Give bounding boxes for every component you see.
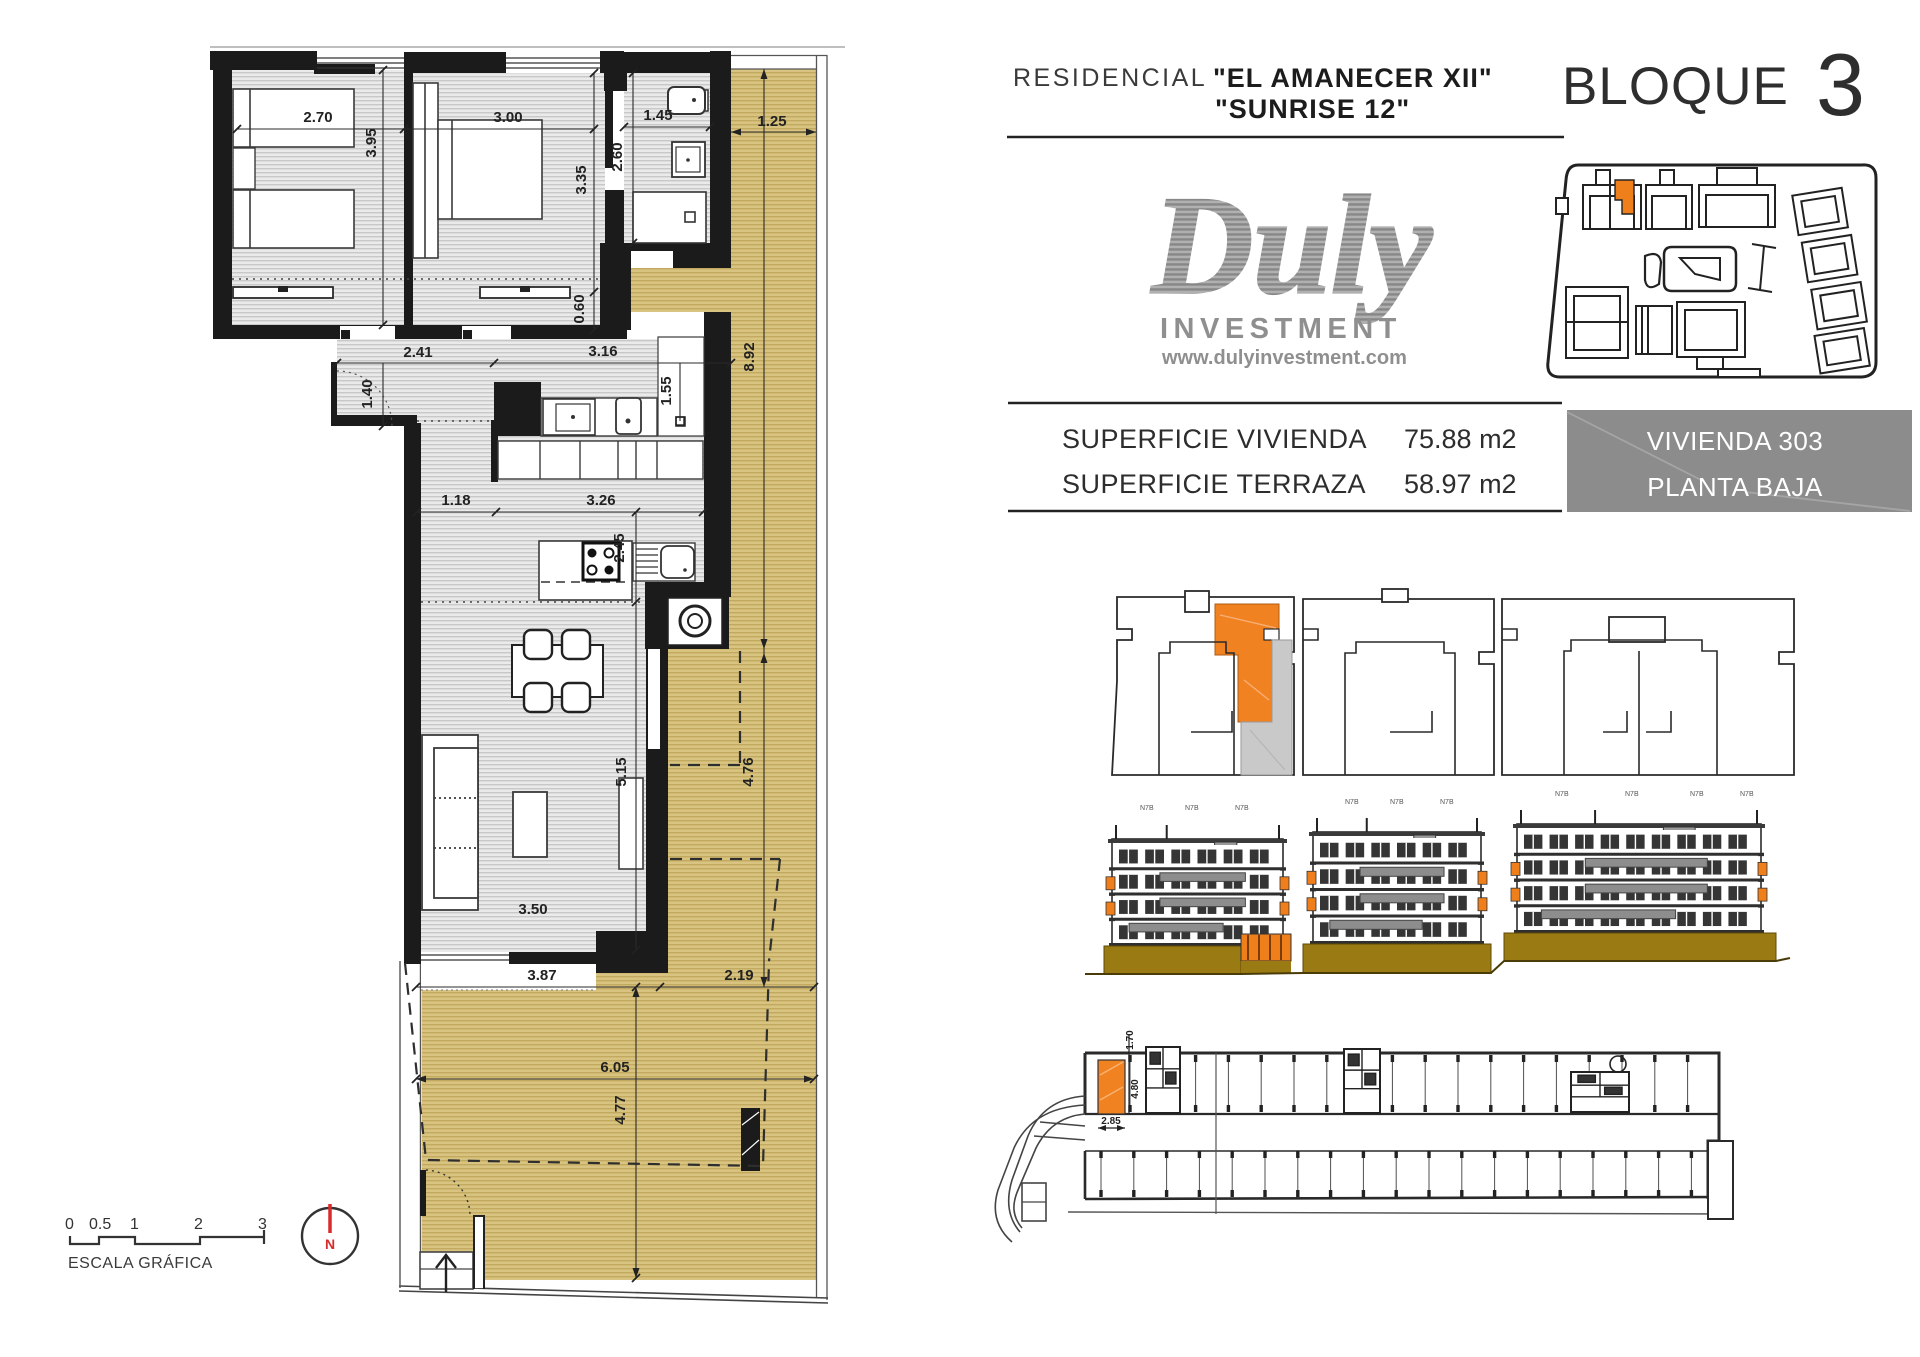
svg-text:1.45: 1.45 [643,107,672,124]
svg-text:ESCALA GRÁFICA: ESCALA GRÁFICA [68,1253,213,1272]
svg-text:3.26: 3.26 [586,492,615,509]
svg-text:1.40: 1.40 [359,379,376,408]
svg-text:N7B: N7B [1555,791,1569,798]
svg-text:3: 3 [258,1216,267,1233]
svg-text:PLANTA BAJA: PLANTA BAJA [1647,472,1823,502]
svg-text:3: 3 [1816,35,1865,134]
svg-text:N7B: N7B [1690,791,1704,798]
svg-text:1.55: 1.55 [658,376,675,405]
svg-text:0.60: 0.60 [571,294,588,323]
svg-text:5.15: 5.15 [613,757,630,786]
svg-text:N7B: N7B [1345,799,1359,806]
svg-text:SUPERFICIE TERRAZA: SUPERFICIE TERRAZA [1062,469,1366,499]
svg-text:4.77: 4.77 [612,1095,629,1124]
svg-text:3.16: 3.16 [588,343,617,360]
svg-text:RESIDENCIAL: RESIDENCIAL [1013,64,1207,92]
svg-text:N7B: N7B [1235,805,1249,812]
svg-text:3.35: 3.35 [573,165,590,194]
svg-text:N: N [325,1236,335,1252]
svg-text:6.05: 6.05 [600,1059,629,1076]
svg-text:SUPERFICIE VIVIENDA: SUPERFICIE VIVIENDA [1062,424,1367,454]
svg-text:VIVIENDA 303: VIVIENDA 303 [1647,426,1824,456]
svg-text:75.88 m2: 75.88 m2 [1404,424,1517,454]
svg-text:2: 2 [194,1216,203,1233]
svg-text:0.5: 0.5 [89,1216,111,1233]
svg-text:BLOQUE: BLOQUE [1562,57,1789,116]
svg-text:4.80: 4.80 [1130,1079,1141,1099]
svg-text:2.85: 2.85 [1101,1116,1121,1127]
svg-text:2.45: 2.45 [611,533,628,562]
svg-text:3.00: 3.00 [493,109,522,126]
svg-text:N7B: N7B [1740,791,1754,798]
svg-text:"SUNRISE 12": "SUNRISE 12" [1215,94,1410,124]
svg-text:1.18: 1.18 [441,492,470,509]
svg-text:1.25: 1.25 [757,113,786,130]
svg-text:2.60: 2.60 [609,142,626,171]
svg-text:4.76: 4.76 [740,757,757,786]
svg-text:N7B: N7B [1625,791,1639,798]
svg-text:N7B: N7B [1390,799,1404,806]
svg-text:3.87: 3.87 [527,967,556,984]
svg-text:N7B: N7B [1185,805,1199,812]
svg-text:Duly: Duly [1150,168,1433,323]
svg-text:2.70: 2.70 [303,109,332,126]
svg-text:INVESTMENT: INVESTMENT [1160,313,1402,345]
svg-text:2.19: 2.19 [724,967,753,984]
svg-text:1.70: 1.70 [1125,1030,1136,1050]
svg-text:1: 1 [130,1216,139,1233]
svg-text:N7B: N7B [1140,805,1154,812]
svg-text:3.95: 3.95 [363,128,380,157]
svg-text:3.50: 3.50 [518,901,547,918]
svg-text:"EL AMANECER XII": "EL AMANECER XII" [1213,63,1493,93]
svg-text:2.41: 2.41 [403,344,432,361]
svg-text:0: 0 [65,1216,74,1233]
svg-text:www.dulyinvestment.com: www.dulyinvestment.com [1161,347,1407,369]
svg-text:58.97 m2: 58.97 m2 [1404,469,1517,499]
svg-text:N7B: N7B [1440,799,1454,806]
svg-text:8.92: 8.92 [741,342,758,371]
